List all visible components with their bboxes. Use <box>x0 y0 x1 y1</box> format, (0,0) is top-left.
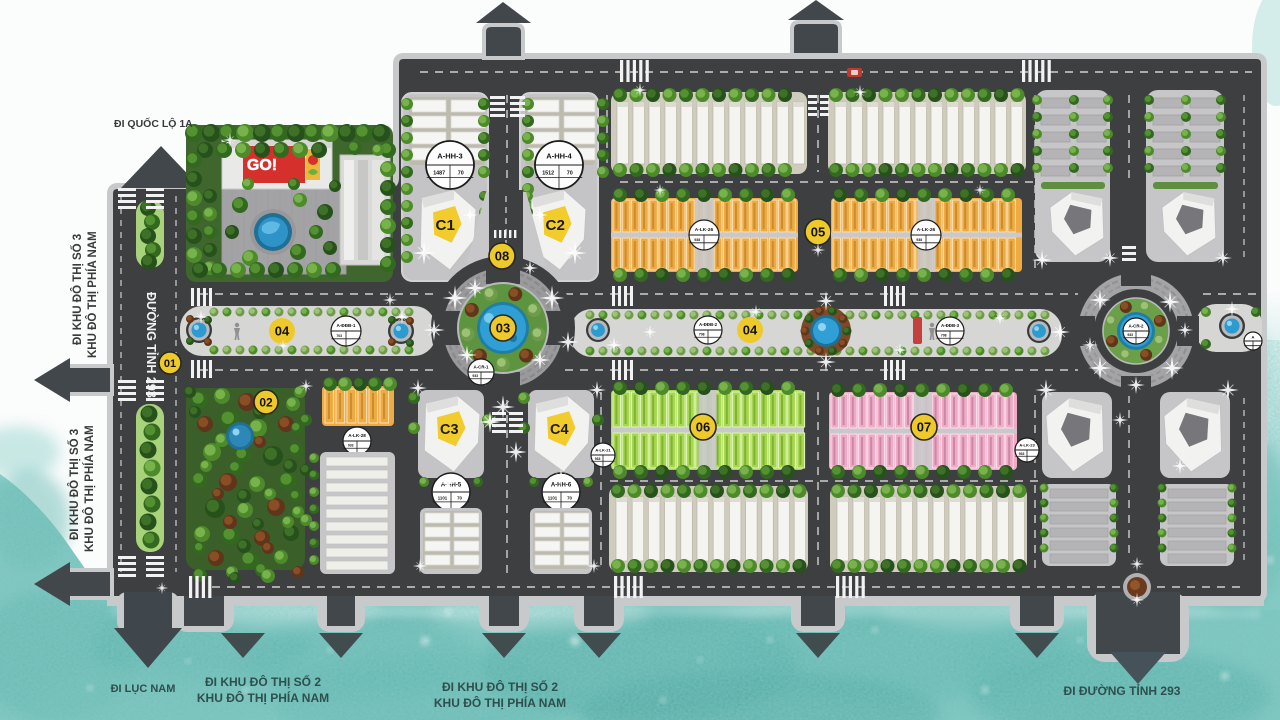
svg-text:703: 703 <box>336 334 342 338</box>
svg-text:1487: 1487 <box>433 171 445 177</box>
svg-text:A-LK-21: A-LK-21 <box>595 448 611 453</box>
svg-text:A-LK-28: A-LK-28 <box>348 433 366 438</box>
svg-text:933: 933 <box>348 444 354 448</box>
svg-text:06: 06 <box>696 420 710 435</box>
svg-text:ĐI LỤC NAM: ĐI LỤC NAM <box>111 683 176 695</box>
svg-text:02: 02 <box>259 395 273 409</box>
svg-text:A-LK-23: A-LK-23 <box>1019 443 1035 448</box>
svg-text:07: 07 <box>917 420 931 435</box>
svg-text:933: 933 <box>595 457 601 461</box>
svg-text:04: 04 <box>743 323 758 338</box>
svg-text:C2: C2 <box>546 217 565 234</box>
svg-text:ĐI KHU ĐÔ THỊ SỐ 3: ĐI KHU ĐÔ THỊ SỐ 3 <box>70 234 84 345</box>
svg-text:A-LK-26: A-LK-26 <box>695 227 714 233</box>
svg-text:938: 938 <box>916 238 922 242</box>
svg-text:C1: C1 <box>436 217 456 234</box>
svg-text:01: 01 <box>164 358 176 370</box>
svg-text:708: 708 <box>941 334 947 338</box>
svg-text:04: 04 <box>275 324 290 339</box>
svg-text:ĐI KHU ĐÔ THỊ SỐ 3: ĐI KHU ĐÔ THỊ SỐ 3 <box>67 429 81 540</box>
svg-text:ĐƯỜNG TỈNH 293: ĐƯỜNG TỈNH 293 <box>144 292 159 398</box>
svg-text:1512: 1512 <box>542 171 554 177</box>
svg-text:938: 938 <box>694 238 700 242</box>
svg-text:A-ĐĐB-1: A-ĐĐB-1 <box>337 323 356 328</box>
svg-text:A: A <box>1252 334 1255 339</box>
svg-text:708: 708 <box>699 333 705 337</box>
svg-text:A-CR-1: A-CR-1 <box>474 364 489 369</box>
svg-text:KHU ĐÔ THỊ PHÍA NAM: KHU ĐÔ THỊ PHÍA NAM <box>86 231 99 358</box>
svg-text:KHU ĐÔ THỊ PHÍA NAM: KHU ĐÔ THỊ PHÍA NAM <box>197 690 329 705</box>
svg-text:A-HH-4: A-HH-4 <box>546 151 572 160</box>
svg-text:933: 933 <box>1127 333 1133 337</box>
svg-text:KHU ĐÔ THỊ PHÍA NAM: KHU ĐÔ THỊ PHÍA NAM <box>83 425 96 552</box>
svg-text:ĐI QUỐC LỘ 1A: ĐI QUỐC LỘ 1A <box>114 116 193 130</box>
svg-text:ĐI KHU ĐÔ THỊ SỐ 2: ĐI KHU ĐÔ THỊ SỐ 2 <box>442 679 558 694</box>
svg-text:03: 03 <box>496 321 510 336</box>
svg-text:A-HH-3: A-HH-3 <box>437 151 462 160</box>
svg-text:1101: 1101 <box>548 496 558 501</box>
svg-text:C3: C3 <box>440 422 458 438</box>
svg-text:GO!: GO! <box>247 157 277 174</box>
svg-text:A-LK-26: A-LK-26 <box>917 227 936 233</box>
svg-text:08: 08 <box>495 249 509 264</box>
svg-text:05: 05 <box>811 225 825 240</box>
svg-text:70: 70 <box>457 496 462 501</box>
svg-text:A-ĐĐB-3: A-ĐĐB-3 <box>941 323 960 328</box>
svg-text:C4: C4 <box>550 422 568 438</box>
svg-text:A-CR-2: A-CR-2 <box>1129 323 1144 328</box>
svg-text:70: 70 <box>458 171 464 177</box>
svg-text:1101: 1101 <box>438 496 448 501</box>
svg-text:ĐI ĐƯỜNG TỈNH 293: ĐI ĐƯỜNG TỈNH 293 <box>1064 683 1181 698</box>
svg-text:A-ĐĐB-2: A-ĐĐB-2 <box>699 322 718 327</box>
svg-text:70: 70 <box>567 496 572 501</box>
svg-text:ĐI KHU ĐÔ THỊ SỐ 2: ĐI KHU ĐÔ THỊ SỐ 2 <box>205 674 321 689</box>
svg-text:70: 70 <box>567 171 573 177</box>
svg-text:933: 933 <box>1019 452 1025 456</box>
svg-text:KHU ĐÔ THỊ PHÍA NAM: KHU ĐÔ THỊ PHÍA NAM <box>434 695 566 710</box>
svg-text:933: 933 <box>472 374 478 378</box>
